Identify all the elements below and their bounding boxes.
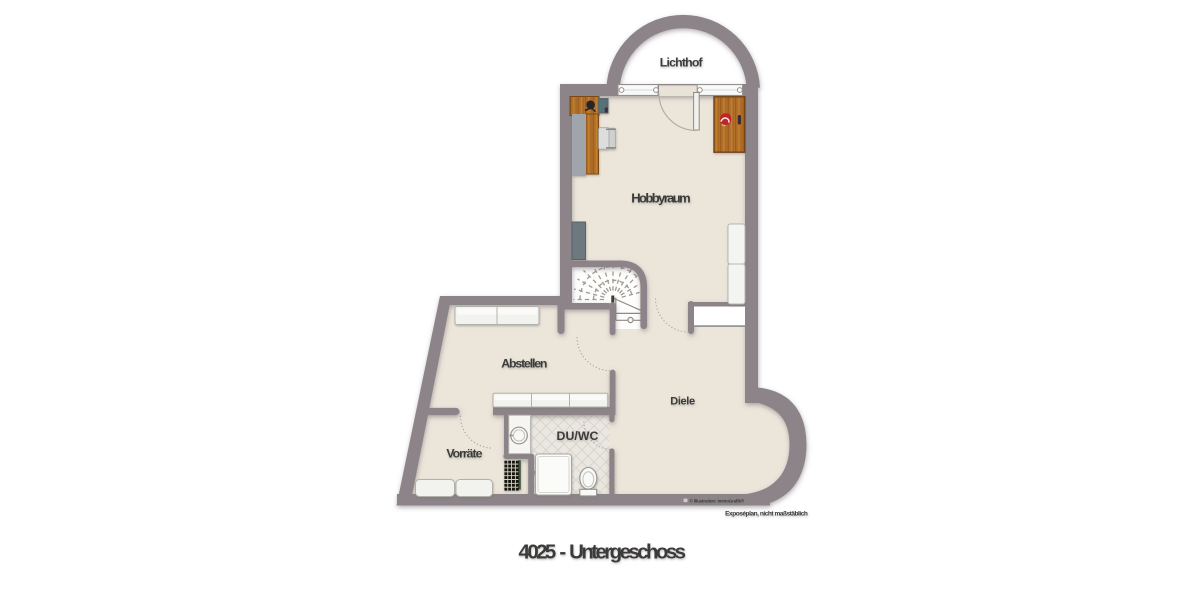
- svg-text:Diele: Diele: [670, 395, 695, 407]
- svg-text:© Illustration: immoGrafik®: © Illustration: immoGrafik®: [690, 499, 745, 504]
- svg-text:Hobbyraum: Hobbyraum: [631, 191, 690, 206]
- svg-text:DU/WC: DU/WC: [557, 429, 599, 443]
- svg-text:Vorräte: Vorräte: [446, 447, 482, 461]
- svg-text:Exposéplan, nicht maßstäblich: Exposéplan, nicht maßstäblich: [725, 510, 808, 517]
- svg-text:4025 - Untergeschoss: 4025 - Untergeschoss: [519, 541, 686, 564]
- svg-text:Abstellen: Abstellen: [501, 357, 547, 371]
- svg-text:Lichthof: Lichthof: [660, 56, 704, 70]
